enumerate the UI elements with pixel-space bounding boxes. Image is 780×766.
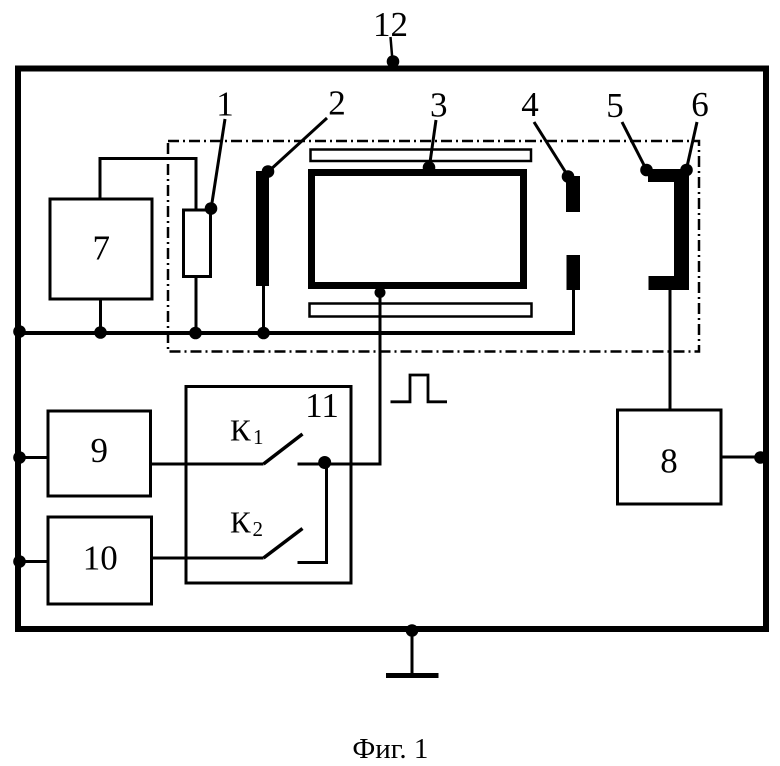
svg-text:5: 5 — [606, 86, 624, 125]
svg-text:Фиг. 1: Фиг. 1 — [352, 733, 428, 765]
svg-text:9: 9 — [91, 431, 109, 470]
svg-text:К: К — [230, 505, 251, 540]
svg-text:6: 6 — [691, 85, 709, 124]
svg-text:1: 1 — [253, 425, 264, 449]
svg-text:1: 1 — [216, 85, 234, 124]
svg-text:8: 8 — [660, 442, 678, 481]
svg-text:К: К — [230, 413, 251, 448]
svg-text:2: 2 — [253, 517, 264, 541]
svg-text:11: 11 — [305, 386, 339, 425]
svg-text:2: 2 — [328, 84, 346, 123]
svg-text:4: 4 — [521, 85, 539, 124]
svg-text:3: 3 — [430, 86, 448, 125]
svg-text:7: 7 — [92, 229, 110, 268]
svg-text:10: 10 — [83, 539, 118, 578]
